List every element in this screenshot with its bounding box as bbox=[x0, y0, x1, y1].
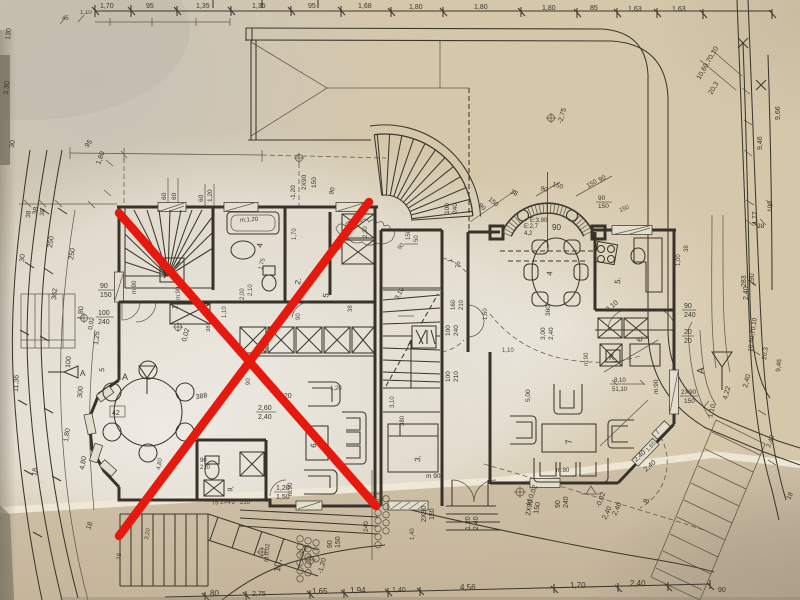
svg-text:150: 150 bbox=[311, 177, 318, 188]
svg-text:20: 20 bbox=[684, 329, 692, 336]
svg-text:30: 30 bbox=[9, 140, 17, 148]
svg-text:240: 240 bbox=[363, 521, 370, 532]
svg-text:5.: 5. bbox=[613, 277, 623, 284]
svg-text:60: 60 bbox=[198, 194, 205, 202]
svg-text:100: 100 bbox=[444, 203, 451, 214]
svg-text:10,: 10, bbox=[272, 559, 283, 572]
svg-text:90: 90 bbox=[296, 313, 302, 320]
svg-text:1,40: 1,40 bbox=[410, 528, 416, 540]
svg-text:1,70: 1,70 bbox=[100, 3, 114, 10]
svg-text:1,63: 1,63 bbox=[672, 6, 686, 13]
svg-text:3,00: 3,00 bbox=[540, 327, 547, 340]
svg-text:A: A bbox=[122, 372, 128, 382]
svg-text:240: 240 bbox=[98, 319, 110, 326]
svg-text:85: 85 bbox=[590, 5, 598, 12]
svg-text:95: 95 bbox=[146, 3, 154, 10]
svg-text:2,40: 2,40 bbox=[630, 579, 646, 588]
svg-text:150: 150 bbox=[684, 398, 695, 405]
svg-text:1,65: 1,65 bbox=[312, 587, 328, 596]
svg-text:75: 75 bbox=[456, 261, 462, 268]
svg-text:3,10: 3,10 bbox=[390, 396, 396, 408]
svg-text:m:90: m:90 bbox=[132, 280, 138, 294]
svg-text:1,20: 1,20 bbox=[207, 189, 214, 202]
svg-text:2X90: 2X90 bbox=[421, 506, 428, 522]
svg-text:2,75: 2,75 bbox=[252, 591, 266, 598]
svg-text:100: 100 bbox=[65, 356, 73, 368]
svg-text:2,40: 2,40 bbox=[743, 286, 750, 300]
svg-text:240: 240 bbox=[684, 312, 696, 319]
svg-text:38: 38 bbox=[25, 210, 33, 218]
svg-text:90: 90 bbox=[246, 378, 252, 385]
svg-text:90: 90 bbox=[598, 195, 606, 202]
svg-text:1,10: 1,10 bbox=[222, 306, 228, 318]
svg-text:4,56: 4,56 bbox=[460, 583, 476, 592]
svg-text:100: 100 bbox=[445, 371, 452, 382]
svg-text:A: A bbox=[696, 367, 707, 374]
svg-text:160: 160 bbox=[451, 299, 457, 310]
svg-text:7: 7 bbox=[564, 439, 574, 445]
svg-text:9,46: 9,46 bbox=[757, 136, 764, 150]
svg-text:240: 240 bbox=[453, 325, 460, 336]
svg-text:38: 38 bbox=[348, 305, 354, 312]
svg-text:6.: 6. bbox=[635, 335, 645, 342]
svg-text:90: 90 bbox=[327, 540, 334, 548]
svg-text:1,70: 1,70 bbox=[292, 228, 298, 240]
svg-text:1,80: 1,80 bbox=[409, 4, 423, 11]
svg-text:m:90: m:90 bbox=[584, 352, 590, 366]
svg-text:1,10: 1,10 bbox=[502, 348, 514, 354]
svg-text:-1,20: -1,20 bbox=[290, 185, 297, 200]
svg-text:4,2: 4,2 bbox=[524, 231, 533, 237]
svg-text:95: 95 bbox=[308, 3, 316, 10]
svg-text:90: 90 bbox=[552, 223, 561, 232]
svg-text:210: 210 bbox=[459, 299, 465, 310]
svg-text:1,25: 1,25 bbox=[93, 331, 101, 345]
svg-text:150: 150 bbox=[598, 203, 609, 210]
svg-text:60: 60 bbox=[161, 192, 168, 200]
svg-text:1,80: 1,80 bbox=[474, 4, 488, 11]
svg-text:240: 240 bbox=[563, 496, 570, 508]
svg-text:283: 283 bbox=[741, 275, 748, 287]
svg-text:360: 360 bbox=[545, 305, 552, 316]
svg-text:m 90: m 90 bbox=[426, 473, 441, 480]
svg-text:K: K bbox=[609, 353, 615, 362]
svg-text:E:2,7: E:2,7 bbox=[524, 224, 539, 230]
svg-text:A: A bbox=[80, 369, 86, 378]
svg-text:2,10: 2,10 bbox=[248, 284, 254, 296]
svg-text:240: 240 bbox=[452, 203, 459, 214]
svg-text:3,30: 3,30 bbox=[3, 81, 11, 95]
svg-text:30: 30 bbox=[19, 254, 27, 262]
svg-text:2X90: 2X90 bbox=[301, 174, 308, 190]
svg-text:38: 38 bbox=[757, 223, 765, 230]
svg-text:5,00: 5,00 bbox=[525, 389, 532, 402]
svg-text:100: 100 bbox=[445, 325, 452, 336]
svg-text:2,30: 2,30 bbox=[363, 226, 369, 238]
svg-text:20: 20 bbox=[684, 338, 692, 345]
svg-text:1,20: 1,20 bbox=[465, 516, 472, 530]
svg-text:51,10: 51,10 bbox=[612, 387, 628, 393]
svg-text:1,10: 1,10 bbox=[80, 10, 92, 16]
svg-text:50: 50 bbox=[414, 235, 420, 242]
svg-text:100: 100 bbox=[98, 310, 110, 317]
svg-text:m:90: m:90 bbox=[653, 379, 660, 394]
svg-text:42: 42 bbox=[112, 410, 120, 417]
svg-text:38: 38 bbox=[39, 208, 47, 216]
svg-text:1,68: 1,68 bbox=[358, 3, 372, 10]
svg-text:90: 90 bbox=[100, 283, 108, 290]
svg-text:60: 60 bbox=[171, 192, 178, 200]
svg-text:2,60: 2,60 bbox=[258, 405, 272, 412]
svg-text:1,00: 1,00 bbox=[676, 254, 682, 266]
svg-text:1,35: 1,35 bbox=[252, 3, 266, 10]
svg-text:E:3,90: E:3,90 bbox=[530, 218, 548, 224]
svg-text:100: 100 bbox=[767, 201, 774, 212]
svg-text:150: 150 bbox=[335, 536, 342, 548]
svg-text:9,66: 9,66 bbox=[775, 106, 782, 120]
svg-text:150: 150 bbox=[406, 229, 412, 240]
svg-text:210: 210 bbox=[240, 500, 251, 506]
svg-text:300: 300 bbox=[77, 386, 85, 398]
svg-text:90: 90 bbox=[555, 500, 562, 508]
svg-text:1,70: 1,70 bbox=[570, 581, 586, 590]
svg-text:2,40: 2,40 bbox=[473, 516, 480, 530]
svg-text:1,94: 1,94 bbox=[350, 586, 366, 595]
svg-text:90: 90 bbox=[684, 303, 692, 310]
svg-text:2,00: 2,00 bbox=[240, 288, 246, 300]
svg-text:38: 38 bbox=[684, 245, 690, 252]
svg-text:210: 210 bbox=[453, 371, 460, 382]
svg-text:38: 38 bbox=[206, 325, 212, 332]
svg-text:2,40: 2,40 bbox=[548, 327, 555, 340]
svg-text:2,40: 2,40 bbox=[258, 414, 272, 421]
svg-text:210: 210 bbox=[200, 465, 211, 471]
svg-text:9,46: 9,46 bbox=[775, 359, 783, 373]
svg-text:90: 90 bbox=[200, 458, 207, 464]
svg-text:80: 80 bbox=[210, 589, 219, 598]
svg-text:1,20: 1,20 bbox=[330, 386, 342, 392]
svg-text:130: 130 bbox=[5, 28, 13, 40]
svg-text:2X90: 2X90 bbox=[681, 389, 697, 396]
svg-text:1,63: 1,63 bbox=[628, 6, 642, 13]
svg-text:1,40: 1,40 bbox=[392, 587, 406, 594]
svg-text:380: 380 bbox=[400, 415, 406, 426]
svg-text:m:90: m:90 bbox=[288, 482, 294, 496]
svg-text:m:80: m:80 bbox=[556, 468, 570, 474]
svg-text:1,80: 1,80 bbox=[542, 5, 556, 12]
svg-text:1,35: 1,35 bbox=[196, 3, 210, 10]
svg-text:8,10: 8,10 bbox=[614, 378, 626, 384]
svg-text:3.: 3. bbox=[413, 455, 423, 462]
svg-text:1,60: 1,60 bbox=[483, 308, 489, 320]
svg-text:150: 150 bbox=[100, 292, 112, 299]
svg-text:11,36: 11,36 bbox=[13, 375, 21, 392]
svg-text:150: 150 bbox=[429, 508, 436, 520]
svg-text:90: 90 bbox=[718, 587, 726, 594]
